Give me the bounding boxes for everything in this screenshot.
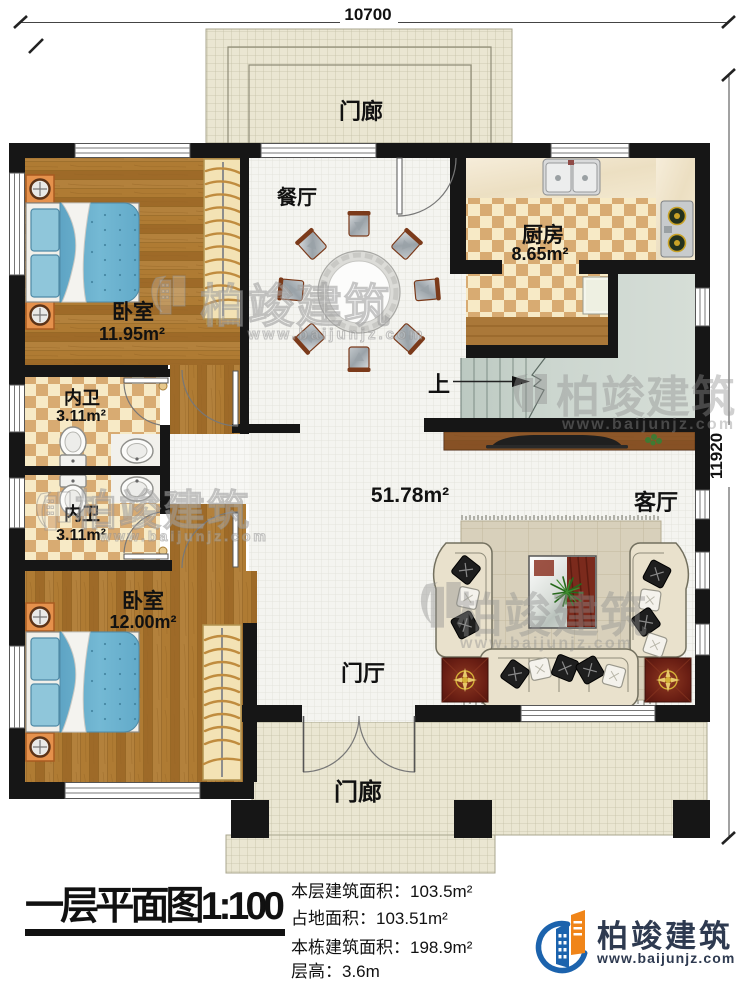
svg-text:客厅: 客厅 [634, 490, 678, 515]
svg-text:www.baijunjz.com: www.baijunjz.com [247, 326, 425, 343]
svg-text:www.baijunjz.com: www.baijunjz.com [459, 635, 633, 652]
svg-text:一层平面图1:100: 一层平面图1:100 [25, 885, 285, 928]
svg-text:51.78m²: 51.78m² [371, 484, 449, 507]
svg-text:www.baijunjz.com: www.baijunjz.com [99, 528, 269, 544]
svg-text:12.00m²: 12.00m² [109, 612, 176, 632]
svg-text:8.65m²: 8.65m² [511, 244, 568, 264]
svg-text:柏竣建筑: 柏竣建筑 [200, 280, 392, 332]
svg-text:柏竣建筑: 柏竣建筑 [75, 487, 251, 534]
svg-text:3.11m²: 3.11m² [56, 408, 106, 425]
svg-text:11.95m²: 11.95m² [99, 324, 165, 344]
svg-text:www.baijunjz.com: www.baijunjz.com [561, 416, 735, 433]
svg-text:内卫: 内卫 [64, 387, 100, 408]
svg-text:柏竣建筑: 柏竣建筑 [597, 919, 733, 954]
svg-text:占地面积：103.51m²: 占地面积：103.51m² [291, 909, 448, 928]
svg-text:10700: 10700 [344, 5, 391, 24]
svg-text:门廊: 门廊 [339, 99, 383, 124]
svg-text:卧室: 卧室 [112, 300, 154, 324]
svg-text:www.baijunjz.com: www.baijunjz.com [596, 950, 735, 966]
svg-text:层高：3.6m: 层高：3.6m [291, 962, 380, 981]
svg-text:餐厅: 餐厅 [277, 185, 317, 209]
svg-text:上: 上 [428, 372, 450, 397]
svg-text:卧室: 卧室 [122, 589, 164, 613]
svg-text:本层建筑面积：103.5m²: 本层建筑面积：103.5m² [291, 882, 473, 901]
svg-text:本栋建筑面积：198.9m²: 本栋建筑面积：198.9m² [291, 938, 473, 957]
svg-text:门廊: 门廊 [334, 778, 382, 806]
svg-text:柏竣建筑: 柏竣建筑 [556, 373, 736, 422]
svg-text:门厅: 门厅 [341, 661, 385, 686]
